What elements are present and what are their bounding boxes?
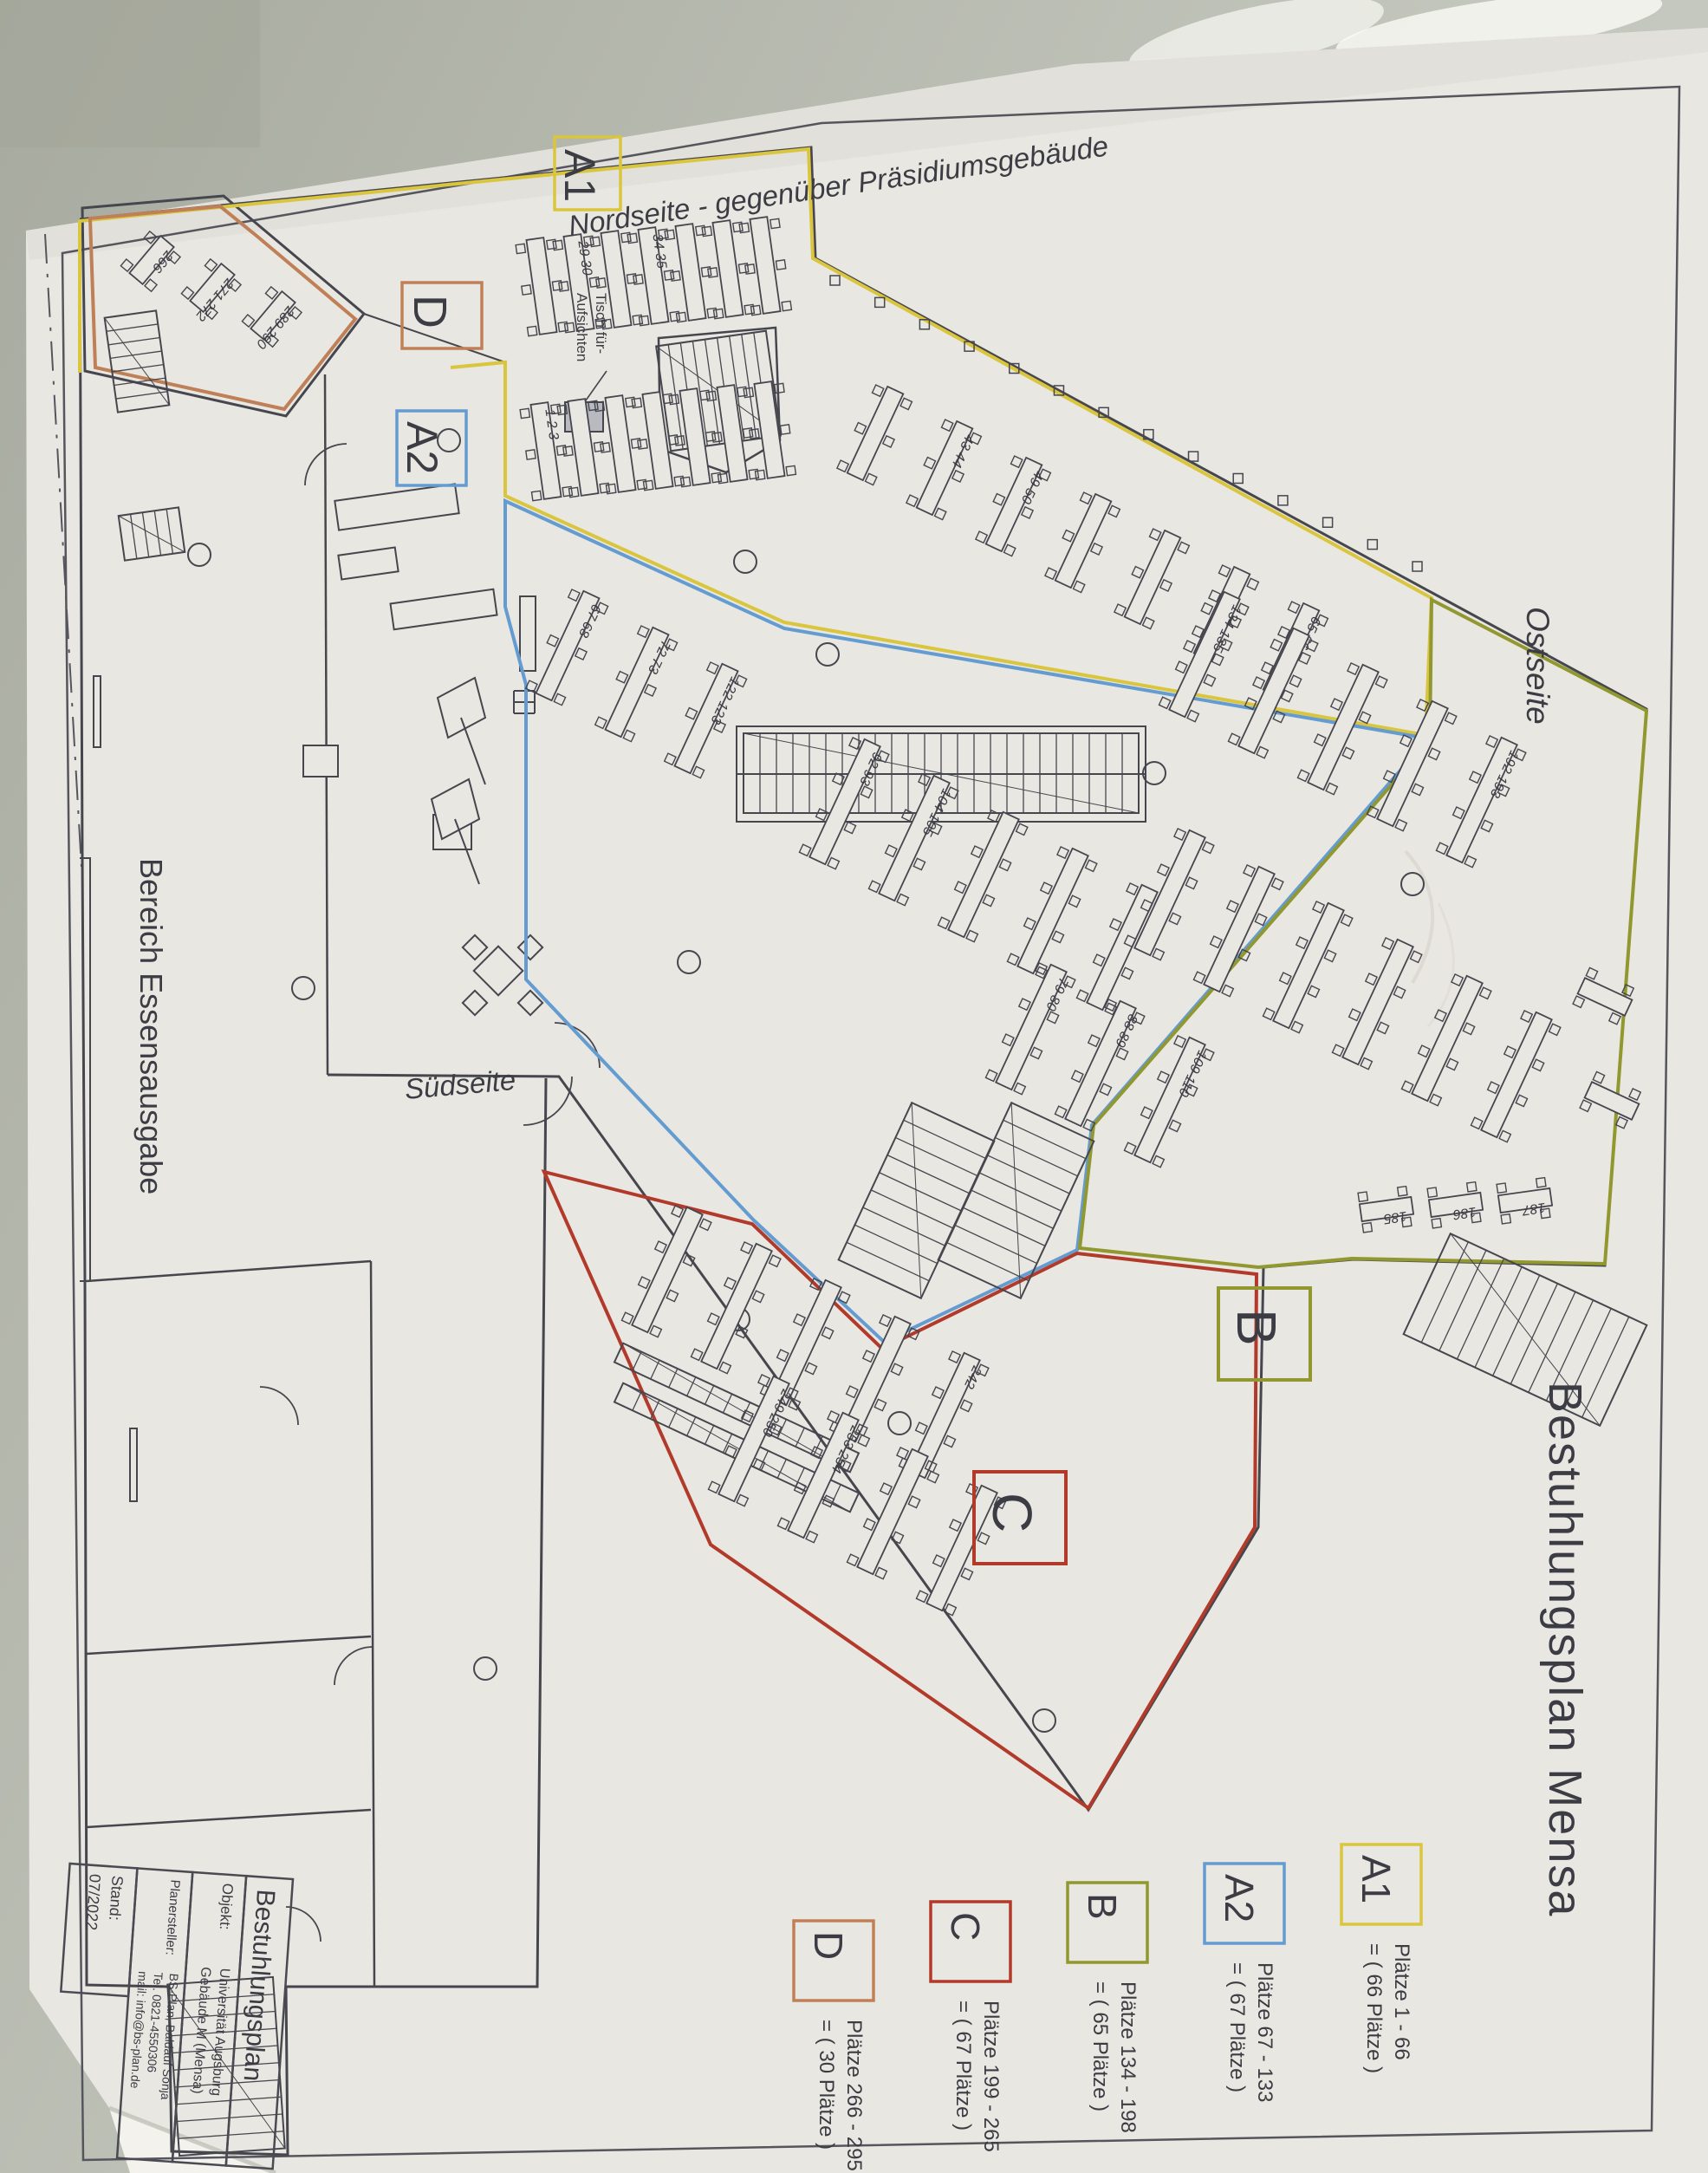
legend-count: = ( 66 Plätze ): [1362, 1943, 1386, 2073]
legend-zone-letter: A1: [1354, 1855, 1399, 1903]
photo-of-seating-plan: 29 3034 351 2 343 4449 5065 6667 6872 73…: [0, 0, 1708, 2173]
legend-count: = ( 30 Plätze ): [815, 2020, 838, 2150]
legend-count: = ( 65 Plätze ): [1088, 1981, 1112, 2111]
legend-range: Plätze 266 - 295: [842, 2020, 866, 2171]
label-essensausgabe: Bereich Essensausgabe: [133, 858, 169, 1194]
legend-range: Plätze 199 - 265: [979, 2001, 1003, 2152]
label-aufsichten: Aufsichten: [574, 293, 590, 361]
objekt-label: Objekt:: [217, 1883, 237, 1930]
legend-zone-letter: C: [943, 1912, 988, 1941]
page-title: Bestuhlungsplan Mensa: [1539, 1382, 1591, 1917]
label-tisch-fuer: Tisch für-: [593, 293, 609, 354]
plan-label-d: D: [404, 295, 456, 329]
legend-zone-letter: B: [1080, 1893, 1125, 1920]
plan-label-a1: A1: [555, 149, 604, 202]
stand-label: Stand:: [106, 1875, 127, 1921]
legend-range: Plätze 1 - 66: [1390, 1943, 1413, 2060]
plan-label-a2: A2: [398, 421, 446, 474]
plan-svg: 29 3034 351 2 343 4449 5065 6667 6872 73…: [0, 0, 1708, 2173]
legend-zone-letter: D: [806, 1931, 851, 1960]
legend-zone-letter: A2: [1217, 1874, 1262, 1923]
legend-range: Plätze 134 - 198: [1116, 1981, 1140, 2133]
legend-range: Plätze 67 - 133: [1253, 1962, 1276, 2102]
label-ostseite: Ostseite: [1520, 607, 1555, 725]
plan-label-b: B: [1225, 1309, 1288, 1346]
plan-label-c: C: [981, 1493, 1043, 1532]
paper-sheet: [26, 28, 1708, 2173]
legend-count: = ( 67 Plätze ): [951, 2001, 975, 2131]
legend-count: = ( 67 Plätze ): [1225, 1962, 1249, 2092]
